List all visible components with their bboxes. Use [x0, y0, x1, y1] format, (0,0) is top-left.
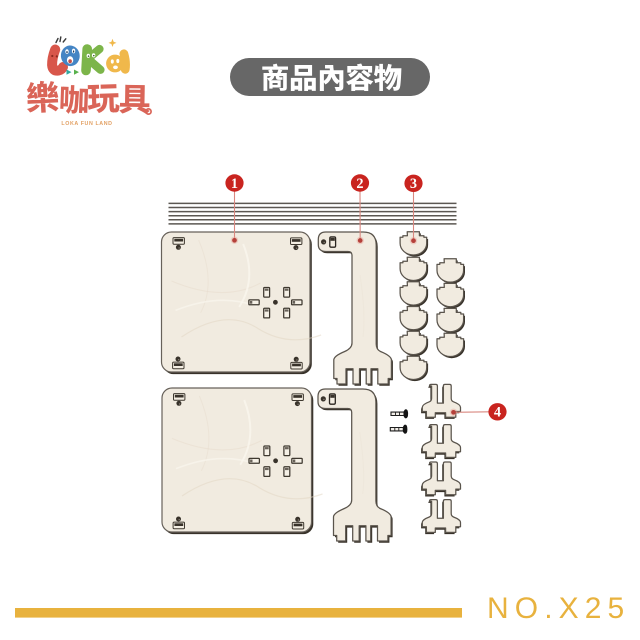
svg-text:4: 4 — [494, 405, 501, 421]
svg-text:NO.X25: NO.X25 — [487, 592, 630, 625]
svg-text:2: 2 — [356, 176, 363, 192]
svg-text:1: 1 — [231, 176, 238, 192]
svg-text:3: 3 — [410, 176, 417, 192]
svg-text:LOKA FUN LAND: LOKA FUN LAND — [61, 121, 112, 127]
